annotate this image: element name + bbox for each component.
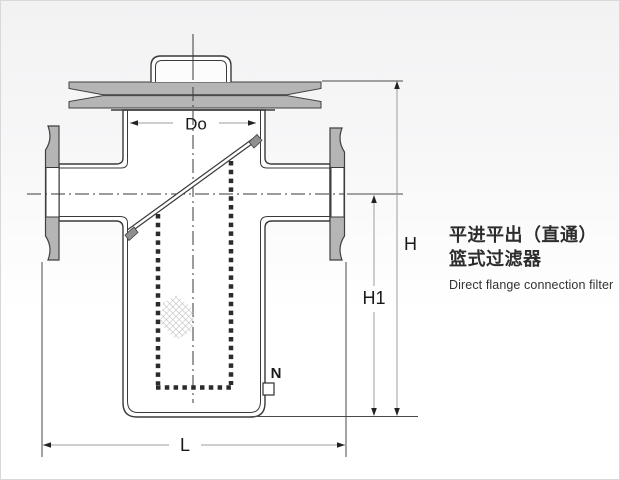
dim-l: L [43,435,345,455]
product-title-zh-line2: 篮式过滤器 [449,247,617,271]
top-cover-lower-flange [69,96,321,108]
dim-label-h: H [404,234,417,254]
drawing-canvas: Do H H1 L N 平进平出（直通） 篮式过滤器 Direct flange… [0,0,620,480]
left-flange-bore [46,168,59,218]
product-title-block: 平进平出（直通） 篮式过滤器 Direct flange connection … [449,223,617,292]
vessel-inner-wall-upper-right [261,110,331,168]
dim-label-h1: H1 [362,288,385,308]
lifting-handle [151,56,231,82]
dim-h1: H1 [362,195,385,416]
product-title-zh-line1: 平进平出（直通） [449,223,617,247]
dim-label-do: Do [185,115,207,134]
right-flange-bore [331,168,344,218]
vessel-body [59,110,330,417]
dim-label-l: L [180,435,190,455]
dim-label-n: N [271,365,282,382]
top-cover-upper-flange [69,82,321,95]
vessel-inner-wall-upper-left [59,110,128,168]
drain-port [263,383,274,395]
product-title-en: Direct flange connection filter [449,278,617,292]
dim-h: H [394,81,417,416]
